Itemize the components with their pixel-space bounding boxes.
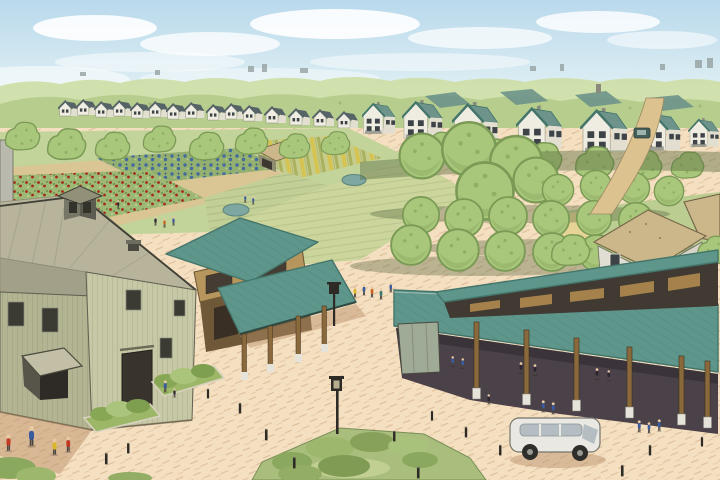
- barn-loft-window: [126, 290, 141, 310]
- orchard-tree: [485, 231, 525, 271]
- barn-window: [174, 300, 185, 316]
- bollard: [701, 437, 703, 447]
- bollard: [265, 429, 268, 441]
- left-edge-building: [0, 140, 13, 208]
- scene-canvas: [0, 0, 720, 480]
- orchard-tree: [533, 201, 569, 237]
- bollard: [621, 465, 624, 477]
- minivan: [510, 418, 606, 468]
- bollard: [417, 467, 420, 479]
- barn-window: [42, 308, 58, 332]
- bollard: [431, 411, 433, 421]
- bollard: [207, 389, 209, 399]
- bollard: [393, 431, 395, 442]
- barn-window: [160, 338, 172, 358]
- orchard-tree: [489, 197, 527, 235]
- bollard: [649, 445, 651, 456]
- parked-car: [634, 128, 650, 138]
- garden-pond: [223, 204, 249, 216]
- watercolor-rendering: [0, 0, 720, 480]
- bollard: [105, 453, 108, 465]
- bollard: [465, 427, 467, 438]
- tree: [400, 134, 445, 179]
- van-windows: [520, 424, 582, 436]
- pavilion-end-panel: [398, 322, 440, 374]
- orchard-tree: [437, 229, 478, 270]
- orchard-tree: [391, 225, 431, 265]
- barn-window: [8, 302, 24, 326]
- bollard: [293, 457, 296, 469]
- bollard: [499, 445, 501, 456]
- barn-ridge-vent: [126, 240, 141, 251]
- bollard: [127, 443, 129, 454]
- orchard-tree: [654, 176, 683, 205]
- bollard: [239, 403, 241, 414]
